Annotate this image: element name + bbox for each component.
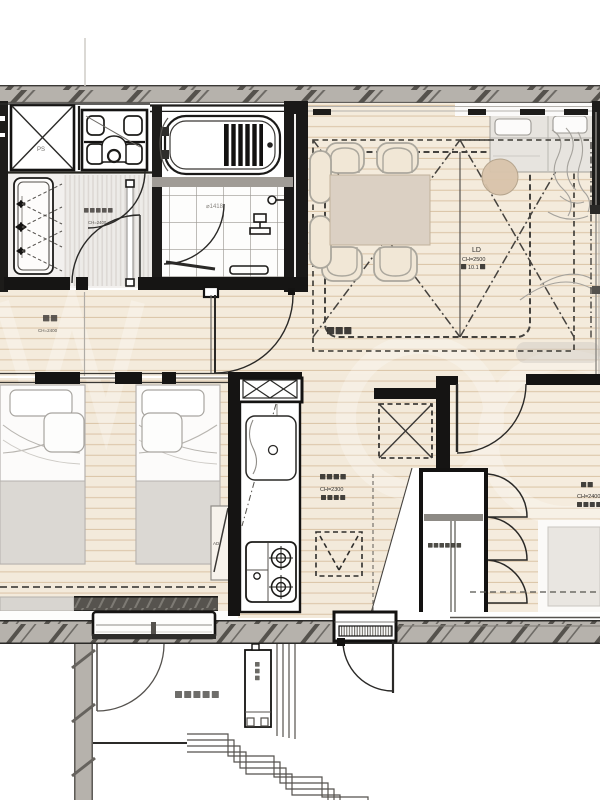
svg-text:⌀1418: ⌀1418 xyxy=(206,204,224,210)
svg-text:CH=2400: CH=2400 xyxy=(38,328,58,333)
svg-text:CH=2400: CH=2400 xyxy=(88,220,107,225)
svg-text:CH=2500: CH=2500 xyxy=(462,257,485,263)
svg-text:CH=2300: CH=2300 xyxy=(320,487,343,493)
svg-text:CH=2400: CH=2400 xyxy=(577,494,600,500)
svg-text:10.1: 10.1 xyxy=(468,265,479,271)
svg-text:LD: LD xyxy=(472,247,481,254)
svg-text:PS: PS xyxy=(37,147,45,153)
svg-text:AD: AD xyxy=(213,541,220,546)
